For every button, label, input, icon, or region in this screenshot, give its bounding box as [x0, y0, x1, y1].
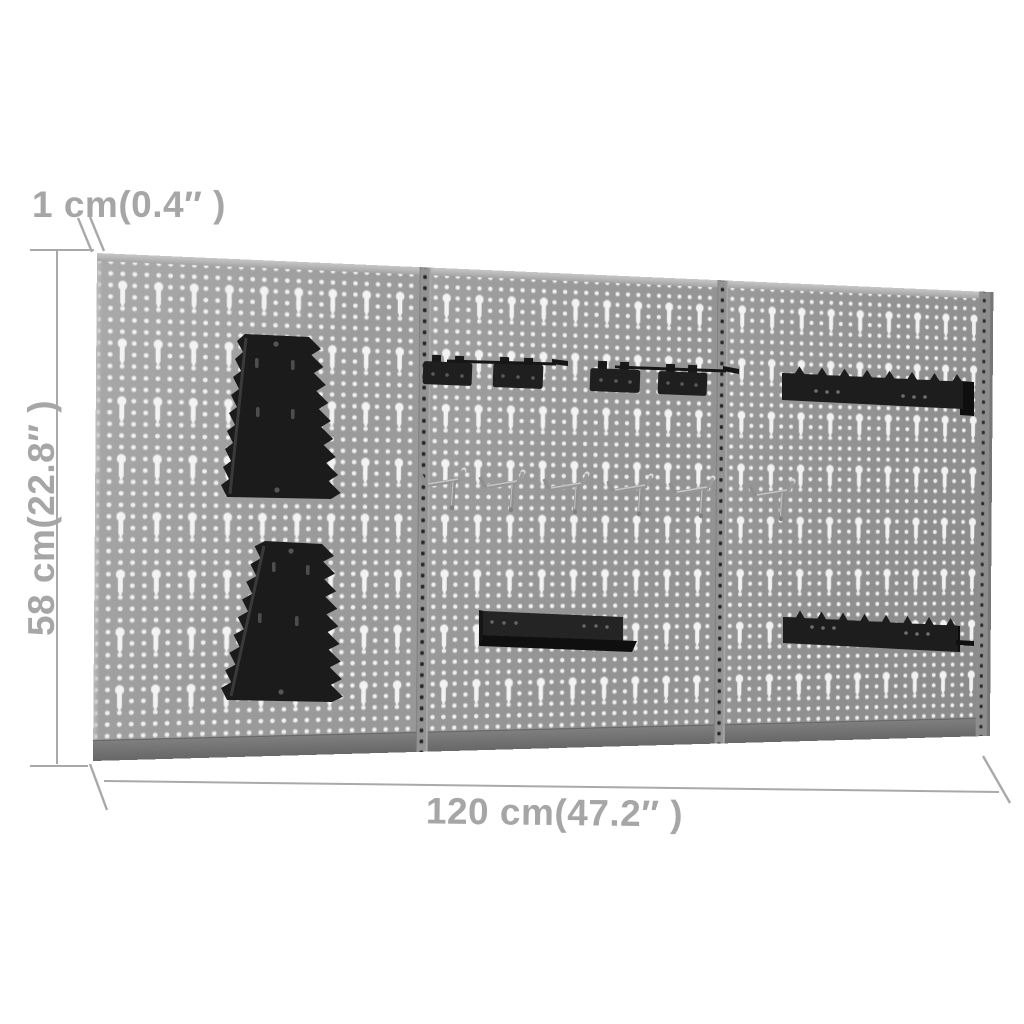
width-dim-left-tick: [90, 764, 107, 810]
panel-right-fold: [976, 292, 994, 737]
pegboard-panel-3: [717, 280, 993, 743]
product-diagram: 1 cm(0.4″ ) 58 cm(22.8″ ) 120 cm(47.2″ ): [0, 0, 1024, 1024]
width-dim-line: [104, 781, 999, 792]
pegboard-panel-2: [419, 267, 720, 752]
pegboard-panel-1: [93, 253, 423, 761]
thickness-dimension-label: 1 cm(0.4″ ): [32, 184, 226, 226]
pegboard-wall: [93, 253, 993, 761]
height-dimension-label: 58 cm(22.8″ ): [21, 368, 63, 668]
width-dimension-label: 120 cm(47.2″ ): [382, 790, 727, 836]
width-dim-right-tick: [983, 756, 1010, 803]
